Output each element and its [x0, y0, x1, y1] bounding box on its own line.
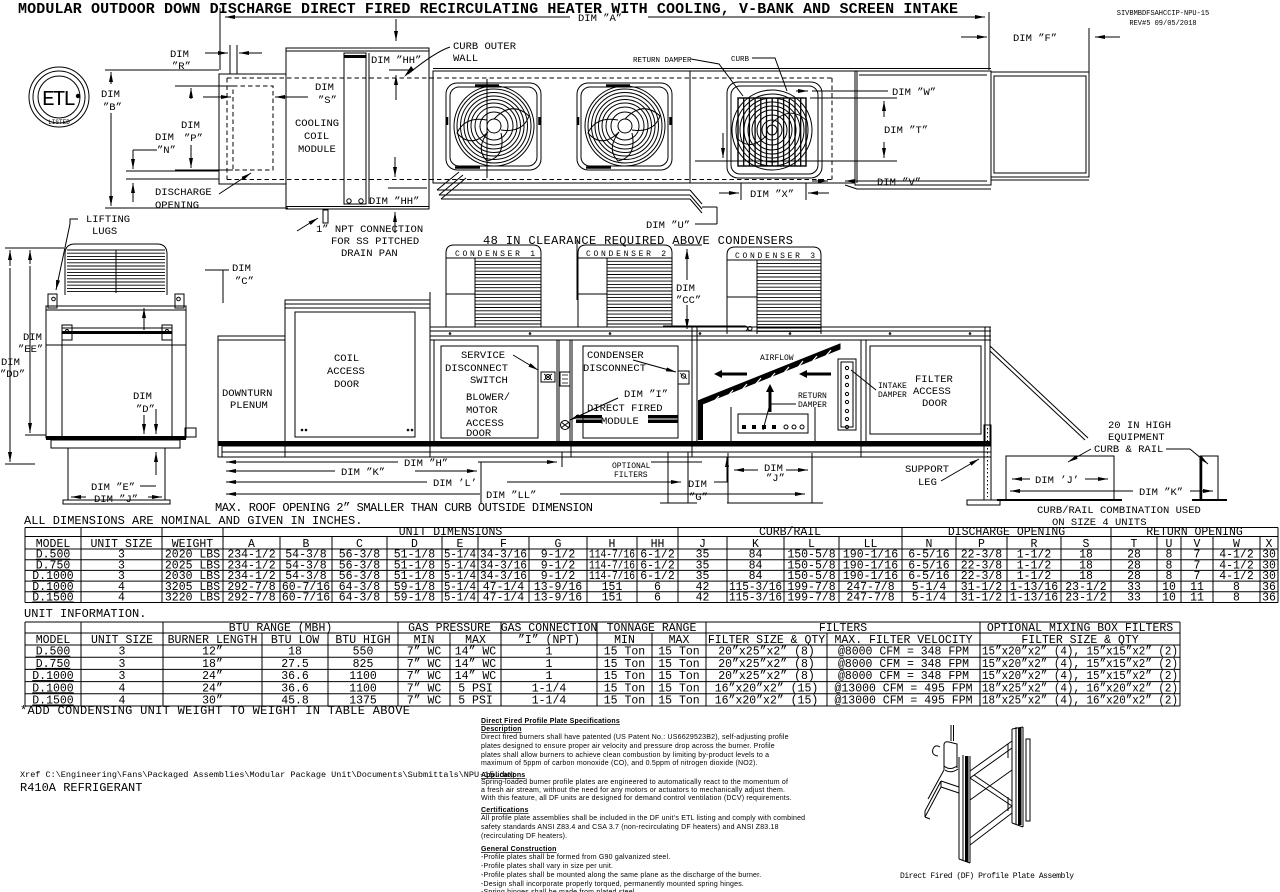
svg-text:18”: 18”	[202, 658, 223, 671]
svg-text:MAX. ROOF OPENING 2” SMALLER T: MAX. ROOF OPENING 2” SMALLER THAN CURB O…	[215, 501, 593, 515]
svg-text:10: 10	[1162, 592, 1176, 605]
svg-text:DIM ”HH”: DIM ”HH”	[371, 55, 421, 67]
svg-text:15 Ton: 15 Ton	[658, 682, 699, 695]
svg-text:LUGS: LUGS	[92, 226, 117, 238]
svg-text:DIM: DIM	[23, 332, 42, 344]
svg-text:-Profile plates shall be forme: -Profile plates shall be formed from G90…	[481, 854, 670, 861]
svg-text:-Profile plates shall vary in: -Profile plates shall vary in size per u…	[481, 863, 613, 870]
svg-text:DIM ”K”: DIM ”K”	[1139, 487, 1183, 499]
svg-text:CURB OUTER: CURB OUTER	[453, 41, 517, 53]
svg-text:DIM ’L’: DIM ’L’	[433, 478, 477, 490]
svg-text:23-1/2: 23-1/2	[1065, 592, 1107, 605]
svg-text:15 Ton: 15 Ton	[604, 695, 645, 708]
svg-text:MODULE: MODULE	[298, 144, 336, 156]
svg-text:1-1/4: 1-1/4	[532, 695, 567, 708]
svg-text:General Construction: General Construction	[481, 846, 557, 853]
svg-text:3220 LBS: 3220 LBS	[165, 592, 220, 605]
svg-text:DIM: DIM	[101, 89, 120, 101]
svg-text:DOOR: DOOR	[466, 428, 492, 440]
svg-text:DIM: DIM	[181, 120, 200, 132]
svg-text:13-9/16: 13-9/16	[534, 592, 582, 605]
svg-text:15 Ton: 15 Ton	[604, 670, 645, 683]
svg-text:247-7/8: 247-7/8	[846, 592, 894, 605]
svg-text:DIM ”J”: DIM ”J”	[94, 494, 138, 506]
svg-text:11: 11	[1190, 592, 1204, 605]
svg-text:33: 33	[1127, 592, 1141, 605]
svg-text:DAMPER: DAMPER	[878, 391, 907, 400]
svg-text:DIM: DIM	[1, 357, 20, 369]
svg-text:D.1000: D.1000	[32, 682, 74, 695]
svg-text:15 Ton: 15 Ton	[604, 682, 645, 695]
svg-text:36.6: 36.6	[281, 682, 309, 695]
svg-text:BLOWER/: BLOWER/	[466, 392, 510, 404]
svg-text:15”x20”x2” (4), 15”x15”x2” (2): 15”x20”x2” (4), 15”x15”x2” (2)	[982, 670, 1178, 683]
svg-text:”R”: ”R”	[172, 61, 191, 73]
svg-text:14” WC: 14” WC	[455, 670, 497, 683]
svg-text:DIM: DIM	[133, 391, 152, 403]
svg-text:Direct Fired Profile Plate Spe: Direct Fired Profile Plate Specification…	[481, 718, 620, 725]
svg-text:7” WC: 7” WC	[407, 695, 442, 708]
svg-text:1: 1	[546, 658, 553, 671]
svg-text:15”x20”x2” (4), 15”x15”x2” (2): 15”x20”x2” (4), 15”x15”x2” (2)	[982, 646, 1178, 659]
svg-text:DISCHARGE: DISCHARGE	[155, 187, 212, 199]
svg-text:DIRECT FIRED: DIRECT FIRED	[587, 403, 663, 415]
svg-text:MODULE: MODULE	[601, 416, 639, 428]
svg-text:DIM ”F”: DIM ”F”	[1013, 33, 1057, 45]
svg-text:4: 4	[119, 682, 126, 695]
svg-text:DIM: DIM	[676, 283, 695, 295]
svg-text:42: 42	[696, 592, 710, 605]
svg-text:WALL: WALL	[453, 53, 478, 65]
svg-text:PLENUM: PLENUM	[230, 400, 268, 412]
svg-text:MODULAR OUTDOOR DOWN DISCHARGE: MODULAR OUTDOOR DOWN DISCHARGE DIRECT FI…	[18, 1, 958, 18]
svg-text:LIFTING: LIFTING	[86, 214, 130, 226]
svg-text:OPTIONAL: OPTIONAL	[612, 462, 651, 471]
svg-text:DOOR: DOOR	[334, 379, 360, 391]
svg-text:@8000 CFM = 348 FPM: @8000 CFM = 348 FPM	[838, 670, 969, 683]
svg-text:1100: 1100	[349, 682, 377, 695]
svg-text:SUPPORT: SUPPORT	[905, 464, 949, 476]
svg-text:5 PSI: 5 PSI	[458, 695, 493, 708]
svg-text:COIL: COIL	[304, 131, 329, 143]
svg-text:825: 825	[353, 658, 374, 671]
svg-text:Direct Fired (DF) Profile Plat: Direct Fired (DF) Profile Plate Assembly	[900, 872, 1074, 881]
svg-text:CURB: CURB	[731, 56, 750, 64]
svg-text:27.5: 27.5	[281, 658, 309, 671]
svg-text:ACCESS: ACCESS	[913, 386, 951, 398]
svg-text:All profile plate assemblies s: All profile plate assemblies shall be in…	[481, 815, 805, 822]
svg-text:@13000 CFM = 495 FPM: @13000 CFM = 495 FPM	[834, 695, 972, 708]
svg-text:8: 8	[1233, 592, 1240, 605]
svg-text:3: 3	[119, 670, 126, 683]
svg-text:UNIT INFORMATION.: UNIT INFORMATION.	[24, 607, 146, 621]
svg-text:CURB/RAIL COMBINATION USED: CURB/RAIL COMBINATION USED	[1037, 505, 1201, 517]
svg-text:Xref C:\Engineering\Fans\Packa: Xref C:\Engineering\Fans\Packaged Assemb…	[20, 770, 515, 780]
svg-text:3: 3	[119, 658, 126, 671]
svg-text:7” WC: 7” WC	[407, 682, 442, 695]
svg-text:24”: 24”	[202, 682, 223, 695]
svg-text:16”x20”x2” (15): 16”x20”x2” (15)	[715, 682, 819, 695]
svg-text:1: 1	[546, 646, 553, 659]
svg-text:15 Ton: 15 Ton	[658, 658, 699, 671]
svg-text:24”: 24”	[202, 670, 223, 683]
svg-text:DIM ”I”: DIM ”I”	[624, 389, 668, 401]
svg-text:Direct fired burners shall hav: Direct fired burners shall have patented…	[481, 734, 789, 741]
svg-text:14” WC: 14” WC	[455, 658, 497, 671]
svg-text:DOWNTURN: DOWNTURN	[222, 388, 272, 400]
svg-text:D.500: D.500	[36, 646, 71, 659]
svg-text:With this feature, all DF unit: With this feature, all DF units are desi…	[481, 795, 792, 802]
svg-text:”G”: ”G”	[689, 492, 708, 504]
svg-text:COOLING: COOLING	[295, 118, 339, 130]
svg-text:36: 36	[1262, 592, 1276, 605]
svg-text:DAMPER: DAMPER	[798, 401, 827, 410]
svg-text:4: 4	[118, 592, 125, 605]
svg-text:-Profile plates shall be mount: -Profile plates shall be mounted along t…	[481, 872, 761, 879]
svg-text:SIVBMBDFSAHCCIP-NPU-15: SIVBMBDFSAHCCIP-NPU-15	[1117, 10, 1209, 18]
svg-text:47-1/4: 47-1/4	[483, 592, 525, 605]
svg-text:RETURN DAMPER: RETURN DAMPER	[633, 57, 692, 65]
svg-text:D.1500: D.1500	[32, 592, 74, 605]
svg-text:plates shall allow burners to: plates shall allow burners to achieve cl…	[481, 752, 769, 759]
svg-text:18”x25”x2” (4), 16”x20”x2” (2): 18”x25”x2” (4), 16”x20”x2” (2)	[982, 682, 1178, 695]
svg-text:ETL: ETL	[42, 89, 75, 112]
svg-text:DIM ”X”: DIM ”X”	[750, 189, 794, 201]
svg-text:DISCONNECT: DISCONNECT	[583, 363, 646, 375]
svg-text:”CC”: ”CC”	[676, 295, 701, 307]
svg-text:FILTERS: FILTERS	[614, 471, 648, 480]
svg-text:”N”: ”N”	[157, 145, 176, 157]
svg-text:”D”: ”D”	[136, 404, 155, 416]
svg-text:7” WC: 7” WC	[407, 658, 442, 671]
svg-text:SWITCH: SWITCH	[470, 375, 508, 387]
svg-text:ACCESS: ACCESS	[327, 366, 365, 378]
svg-text:DIM ’J’: DIM ’J’	[1035, 475, 1079, 487]
svg-text:ALL DIMENSIONS ARE NOMINAL AND: ALL DIMENSIONS ARE NOMINAL AND GIVEN IN …	[24, 514, 362, 528]
svg-text:”C”: ”C”	[235, 276, 254, 288]
svg-text:15 Ton: 15 Ton	[604, 646, 645, 659]
svg-text:1-1/4: 1-1/4	[532, 682, 567, 695]
svg-text:Description: Description	[481, 726, 522, 733]
svg-text:DIM ”T”: DIM ”T”	[884, 125, 928, 137]
svg-text:Certifications: Certifications	[481, 807, 529, 814]
svg-text:DIM ”W”: DIM ”W”	[892, 87, 936, 99]
svg-text:@8000 CFM = 348 FPM: @8000 CFM = 348 FPM	[838, 646, 969, 659]
svg-text:Applications: Applications	[481, 772, 525, 779]
svg-text:CURB & RAIL: CURB & RAIL	[1094, 444, 1163, 456]
svg-text:@13000 CFM = 495 FPM: @13000 CFM = 495 FPM	[834, 682, 972, 695]
svg-text:15”x20”x2” (4), 15”x15”x2” (2): 15”x20”x2” (4), 15”x15”x2” (2)	[982, 658, 1178, 671]
svg-text:5-1/4: 5-1/4	[444, 592, 476, 605]
svg-text:115-3/16: 115-3/16	[729, 592, 782, 605]
svg-text:DIM ”V”: DIM ”V”	[877, 177, 921, 189]
svg-text:5 PSI: 5 PSI	[458, 682, 493, 695]
svg-text:”S”: ”S”	[318, 95, 337, 107]
svg-text:DISCONNECT: DISCONNECT	[445, 363, 508, 375]
svg-text:safety standards ANSI Z83.4 an: safety standards ANSI Z83.4 and CSA 3.7 …	[481, 824, 779, 831]
svg-text:59-1/8: 59-1/8	[394, 592, 436, 605]
svg-text:”EE”: ”EE”	[18, 344, 43, 356]
svg-text:20”x25”x2” (8): 20”x25”x2” (8)	[718, 658, 815, 671]
svg-text:plates designed to ensure prop: plates designed to ensure proper air vel…	[481, 743, 775, 750]
svg-text:15 Ton: 15 Ton	[604, 658, 645, 671]
svg-text:48 IN CLEARANCE REQUIRED ABOVE: 48 IN CLEARANCE REQUIRED ABOVE CONDENSER…	[483, 234, 793, 248]
svg-text:Spring-loaded burner profile p: Spring-loaded burner profile plates are …	[481, 779, 788, 786]
svg-text:(recirculating DF heaters).: (recirculating DF heaters).	[481, 833, 567, 840]
svg-text:5-1/4: 5-1/4	[912, 592, 947, 605]
svg-text:151: 151	[602, 592, 623, 605]
svg-text:31-1/2: 31-1/2	[961, 592, 1003, 605]
svg-text:OPENING: OPENING	[155, 200, 199, 212]
svg-text:36.6: 36.6	[281, 670, 309, 683]
svg-text:DIM: DIM	[232, 263, 251, 275]
svg-text:SERVICE: SERVICE	[461, 350, 505, 362]
svg-text:7” WC: 7” WC	[407, 646, 442, 659]
svg-text:@8000 CFM = 348 FPM: @8000 CFM = 348 FPM	[838, 658, 969, 671]
svg-text:a fresh air stream, without th: a fresh air stream, without the need for…	[481, 787, 785, 794]
svg-text:MOTOR: MOTOR	[466, 405, 498, 417]
svg-text:COIL: COIL	[334, 353, 359, 365]
svg-text:DIM ”K”: DIM ”K”	[341, 467, 385, 479]
svg-text:60-7/16: 60-7/16	[282, 592, 330, 605]
svg-text:7” WC: 7” WC	[407, 670, 442, 683]
svg-text:DIM ”E”: DIM ”E”	[91, 482, 135, 494]
svg-text:DISCHARGE OPENING: DISCHARGE OPENING	[948, 526, 1065, 539]
svg-text:6: 6	[654, 592, 661, 605]
svg-text:maximum of 5ppm of carbon mono: maximum of 5ppm of carbon monoxide (CO),…	[481, 760, 758, 767]
svg-text:RETURN: RETURN	[798, 392, 827, 401]
svg-text:DIM ”U”: DIM ”U”	[646, 220, 690, 232]
svg-text:”J”: ”J”	[766, 473, 785, 485]
svg-text:-Design shall incorporate prop: -Design shall incorporate properly torqu…	[481, 881, 744, 888]
svg-text:20”x25”x2” (8): 20”x25”x2” (8)	[718, 670, 815, 683]
svg-text:”DD”: ”DD”	[0, 369, 25, 381]
svg-text:R410A REFRIGERANT: R410A REFRIGERANT	[20, 781, 142, 795]
svg-text:15 Ton: 15 Ton	[658, 695, 699, 708]
svg-text:1: 1	[546, 670, 553, 683]
svg-text:550: 550	[353, 646, 374, 659]
svg-text:DIM: DIM	[315, 82, 334, 94]
svg-text:18”x25”x2” (4), 16”x20”x2” (2): 18”x25”x2” (4), 16”x20”x2” (2)	[982, 695, 1178, 708]
svg-text:292-7/8: 292-7/8	[227, 592, 275, 605]
svg-text:D.1000: D.1000	[32, 670, 74, 683]
svg-text:EQUIPMENT: EQUIPMENT	[1108, 432, 1165, 444]
svg-text:15 Ton: 15 Ton	[658, 670, 699, 683]
svg-text:14” WC: 14” WC	[455, 646, 497, 659]
svg-text:”B”: ”B”	[103, 102, 122, 114]
svg-text:DIM ”HH”: DIM ”HH”	[369, 196, 419, 208]
svg-text:3: 3	[119, 646, 126, 659]
svg-text:*ADD CONDENSING UNIT WEIGHT TO: *ADD CONDENSING UNIT WEIGHT TO WEIGHT IN…	[20, 704, 410, 718]
svg-text:REV#5 09/05/2018: REV#5 09/05/2018	[1129, 20, 1196, 28]
svg-text:199-7/8: 199-7/8	[787, 592, 835, 605]
svg-text:”P”: ”P”	[184, 133, 203, 145]
svg-text:DIM: DIM	[170, 49, 189, 61]
svg-text:INTAKE: INTAKE	[878, 382, 907, 391]
svg-text:DOOR: DOOR	[922, 398, 948, 410]
svg-text:DIM ”H”: DIM ”H”	[404, 458, 448, 470]
svg-text:1100: 1100	[349, 670, 377, 683]
svg-text:20”x25”x2” (8): 20”x25”x2” (8)	[718, 646, 815, 659]
svg-text:12”: 12”	[202, 646, 223, 659]
svg-text:18: 18	[288, 646, 302, 659]
svg-text:DIM ”A”: DIM ”A”	[578, 13, 622, 25]
svg-text:D.750: D.750	[36, 658, 71, 671]
svg-text:FILTER: FILTER	[915, 374, 954, 386]
svg-text:CONDENSER: CONDENSER	[587, 350, 644, 362]
svg-text:LISTED: LISTED	[48, 119, 70, 126]
svg-text:16”x20”x2” (15): 16”x20”x2” (15)	[715, 695, 819, 708]
svg-text:64-3/8: 64-3/8	[339, 592, 381, 605]
svg-text:15 Ton: 15 Ton	[658, 646, 699, 659]
svg-text:FOR SS PITCHED: FOR SS PITCHED	[331, 236, 419, 248]
svg-text:20 IN HIGH: 20 IN HIGH	[1108, 420, 1171, 432]
svg-text:1” NPT CONNECTION: 1” NPT CONNECTION	[316, 224, 423, 236]
svg-text:DIM: DIM	[155, 132, 174, 144]
svg-text:DRAIN PAN: DRAIN PAN	[341, 248, 398, 260]
svg-text:LEG: LEG	[918, 477, 937, 489]
svg-text:1-13/16: 1-13/16	[1010, 592, 1058, 605]
svg-text:AIRFLOW: AIRFLOW	[760, 354, 794, 363]
svg-text:DIM: DIM	[688, 479, 707, 491]
